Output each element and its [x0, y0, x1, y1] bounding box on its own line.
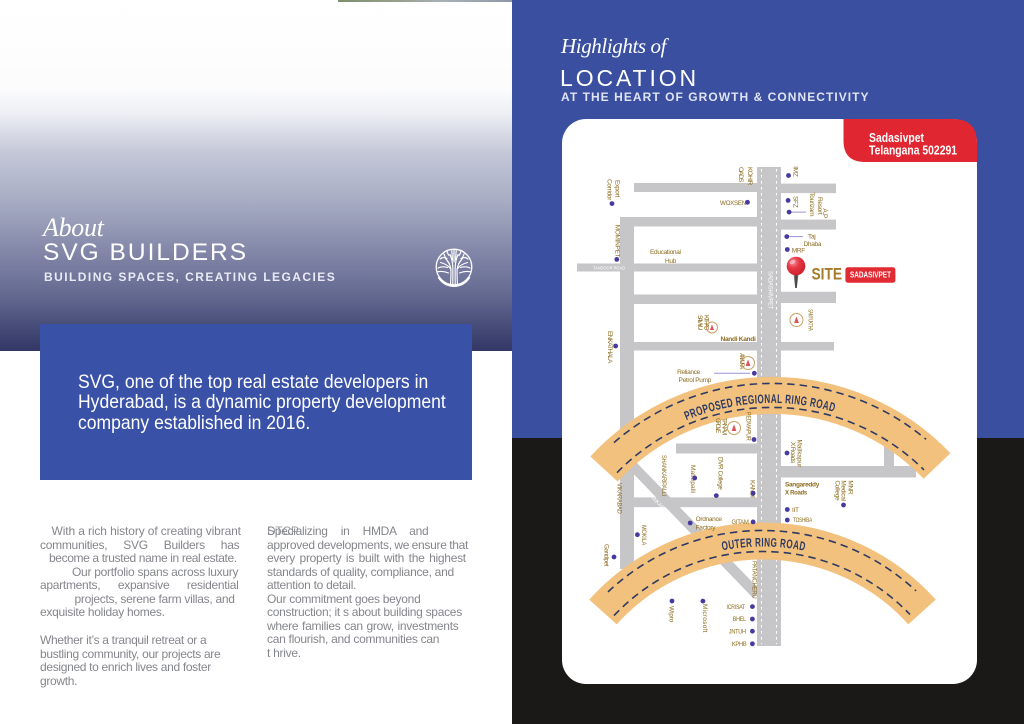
svg-text:Reliance: Reliance	[677, 369, 701, 376]
svg-text:OADS: OADS	[737, 167, 744, 183]
svg-text:A.P: A.P	[821, 208, 828, 218]
svg-text:PEDMAPUR: PEDMAPUR	[745, 412, 752, 441]
svg-text:MOKILA: MOKILA	[640, 525, 647, 546]
svg-text:ICRISAT: ICRISAT	[727, 604, 746, 611]
svg-text:MRF: MRF	[792, 248, 806, 255]
svg-text:SADASHIVPET: SADASHIVPET	[767, 271, 774, 309]
svg-text:DVR College: DVR College	[717, 457, 724, 490]
svg-text:Hub: Hub	[665, 258, 677, 265]
svg-text:KTHA B: KTHA B	[703, 315, 710, 330]
svg-text:JNTUH: JNTUH	[729, 629, 747, 636]
svg-text:Telangana 502291: Telangana 502291	[869, 144, 957, 158]
svg-text:KOHIR: KOHIR	[746, 167, 753, 186]
svg-text:PATANCHERU: PATANCHERU	[751, 561, 758, 599]
svg-text:SAMYU-: SAMYU-	[696, 315, 703, 330]
svg-text:Nandi Kandi: Nandi Kandi	[721, 336, 756, 343]
svg-text:Dhaba: Dhaba	[804, 241, 822, 248]
svg-text:VIKARABAD: VIKARABAD	[616, 483, 623, 514]
svg-text:ENKATHALA: ENKATHALA	[606, 331, 613, 364]
svg-text:GITAM: GITAM	[732, 519, 749, 526]
svg-text:Taj: Taj	[808, 234, 815, 241]
svg-text:BHEL: BHEL	[733, 616, 747, 623]
svg-text:WOXSEN: WOXSEN	[720, 200, 747, 207]
svg-text:Corridor: Corridor	[606, 179, 613, 201]
svg-text:Microsoft: Microsoft	[701, 604, 708, 632]
svg-text:KPHB: KPHB	[732, 641, 747, 648]
svg-text:TANDOOR ROAD: TANDOOR ROAD	[593, 266, 626, 271]
svg-text:IIT: IIT	[792, 507, 799, 514]
svg-text:IMZ: IMZ	[792, 166, 799, 177]
svg-text:Educational: Educational	[650, 249, 682, 256]
svg-text:SFZ: SFZ	[792, 196, 799, 208]
svg-text:SAMYUKTHA: SAMYUKTHA	[807, 309, 814, 331]
svg-text:MOMINPET: MOMINPET	[614, 225, 621, 258]
svg-text:Sangareddy: Sangareddy	[785, 482, 820, 489]
svg-text:SHANKARIPALLI: SHANKARIPALLI	[660, 455, 667, 496]
svg-text:Ordnance: Ordnance	[696, 516, 723, 523]
svg-text:SADASIVPET: SADASIVPET	[850, 271, 891, 280]
svg-text:Petrol Pump: Petrol Pump	[679, 377, 712, 384]
svg-text:Gandipet: Gandipet	[603, 544, 610, 566]
svg-text:Wipro: Wipro	[668, 606, 675, 623]
svg-text:X Roads: X Roads	[789, 442, 796, 464]
svg-text:Export: Export	[614, 180, 621, 197]
svg-text:GROVE: GROVE	[714, 418, 721, 434]
svg-text:Factory: Factory	[696, 525, 717, 532]
svg-text:Tourizam: Tourizam	[808, 192, 815, 216]
svg-text:SITE: SITE	[812, 265, 843, 284]
svg-text:X Roads: X Roads	[785, 490, 808, 497]
svg-text:College: College	[834, 480, 841, 501]
svg-text:TOSHIBA: TOSHIBA	[793, 517, 813, 524]
